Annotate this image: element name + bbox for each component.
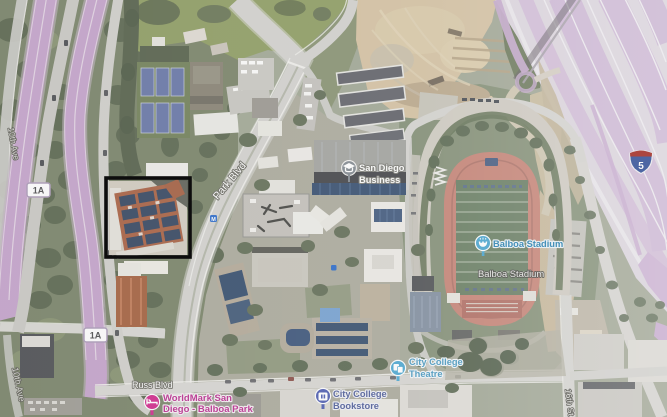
svg-text:Russ Blvd: Russ Blvd [132,380,173,390]
svg-text:1A: 1A [33,186,45,196]
svg-text:1A: 1A [90,331,102,341]
svg-text:Theatre: Theatre [409,369,443,379]
svg-text:WorldMark San: WorldMark San [163,393,232,404]
svg-text:Business: Business [359,175,400,185]
svg-text:M: M [211,217,216,223]
svg-text:City College: City College [409,357,463,367]
svg-text:5: 5 [638,161,644,172]
svg-text:Balboa Stadium: Balboa Stadium [493,239,563,249]
svg-text:Bookstore: Bookstore [333,401,379,411]
svg-text:City College: City College [333,389,387,399]
svg-text:Diego - Balboa Park: Diego - Balboa Park [163,404,253,415]
svg-text:San Diego: San Diego [359,163,405,173]
svg-text:Balboa Stadium: Balboa Stadium [478,268,544,279]
